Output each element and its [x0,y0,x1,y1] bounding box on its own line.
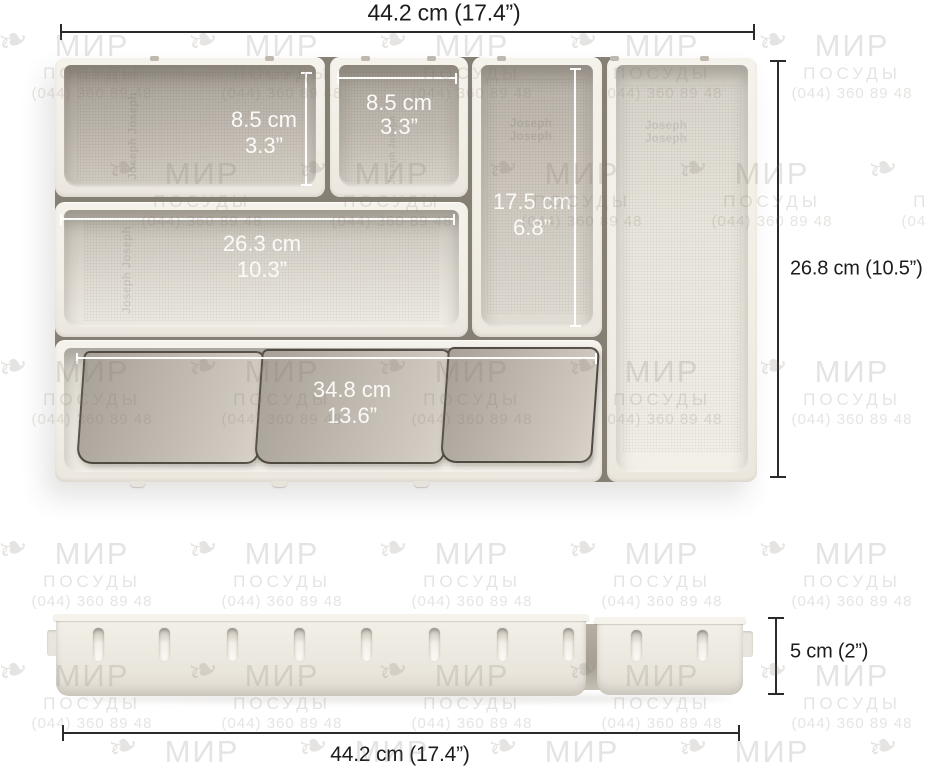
drawer-organizer-dimension-diagram: ❧МИРПОСУДЫ(044) 360 89 48❧МИРПОСУДЫ(044)… [0,0,927,768]
bottom-tab [272,481,287,487]
mid-wide-cm: 26.3 cm [223,231,301,257]
left-top-cm: 8.5 cm [231,107,297,133]
side-view-long-tray [56,614,586,696]
watermark: ❧МИРПОСУДЫ(044) 360 89 48 [782,30,922,101]
watermark: ❧МИРПОСУДЫ(044) 360 89 48 [402,538,542,609]
bottom-long-inch: 13.6” [327,403,377,429]
watermark-logo-icon: ❧ [863,724,903,768]
watermark-logo-icon: ❧ [483,724,523,768]
watermark: ❧МИРПОСУДЫ(044) 360 89 48 [592,538,732,609]
watermark-logo-icon: ❧ [0,526,33,570]
tray-slot [293,627,306,662]
embossed-logo: Joseph Joseph [121,226,134,314]
rim-clip [427,56,436,61]
bottom-tab [414,481,429,487]
watermark-logo-icon: ❧ [373,526,413,570]
tray-slot [496,627,509,662]
rim-clip [265,56,274,61]
side-view-small-tray [597,617,743,695]
divider-panel-1 [76,351,266,464]
tray-slot [158,627,171,662]
bottom-tab [130,481,145,487]
embossed-logo: Joseph Joseph [643,120,689,146]
tray-slot [428,627,441,662]
bottom-long-dimension-line [76,357,597,359]
mid-right-cm: 17.5 cm [493,189,571,215]
watermark: ❧МИРПОСУДЫ(044) 360 89 48 [212,538,352,609]
divider-panel-3 [440,347,600,463]
watermark-logo-icon: ❧ [103,724,143,768]
tray-slot [562,627,575,662]
height-dimension-label: 26.8 cm (10.5”) [790,258,923,281]
top-width-dimension-label: 44.2 cm (17.4”) [368,0,521,27]
rim-clip [150,56,159,61]
watermark-logo-icon: ❧ [0,18,33,62]
tray-slot [630,629,643,662]
watermark-logo-icon: ❧ [183,526,223,570]
tray-slot [92,627,105,662]
height-dimension-line [777,60,779,478]
watermark-logo-icon: ❧ [0,648,33,692]
watermark-logo-icon: ❧ [563,18,603,62]
embossed-logo: Joseph Joseph [127,92,140,180]
left-top-inch: 3.3” [245,133,283,159]
watermark: ❧МИРПОСУДЫ(044) 360 89 48 [512,736,652,768]
embossed-logo: Joseph Joseph [508,118,554,144]
left-top-dimension-line [305,72,307,186]
top-width-dimension-line [60,31,755,33]
watermark: ❧МИРПОСУДЫ(044) 360 89 48 [892,158,927,229]
top-small-dimension-line [337,77,457,79]
tray-slot [360,627,373,662]
watermark-logo-icon: ❧ [753,344,793,388]
top-small-inch: 3.3” [380,114,418,140]
rim-clip [361,56,370,61]
watermark-logo-icon: ❧ [863,146,903,190]
tray-slot [696,629,709,662]
watermark-logo-icon: ❧ [563,526,603,570]
watermark: ❧МИРПОСУДЫ(044) 360 89 48 [22,538,162,609]
watermark: ❧МИРПОСУДЫ(044) 360 89 48 [782,538,922,609]
watermark: ❧МИРПОСУДЫ(044) 360 89 48 [702,736,842,768]
rim-clip [497,56,506,61]
watermark-logo-icon: ❧ [753,18,793,62]
organizer-top-view: Joseph Joseph Joseph Joseph Joseph Josep… [55,57,757,482]
watermark-logo-icon: ❧ [673,724,713,768]
rim-clip [610,56,619,61]
tray-slot [226,627,239,662]
depth-dimension-line [775,617,777,695]
depth-dimension-label: 5 cm (2”) [790,641,868,664]
watermark: ❧МИРПОСУДЫ(044) 360 89 48 [782,356,922,427]
bottom-long-cm: 34.8 cm [313,377,391,403]
watermark-logo-icon: ❧ [753,648,793,692]
watermark-logo-icon: ❧ [293,724,333,768]
mid-wide-inch: 10.3” [237,257,287,283]
watermark-logo-icon: ❧ [753,526,793,570]
watermark: ❧МИРПОСУДЫ(044) 360 89 48 [132,736,272,768]
bottom-width-dimension-line [62,732,740,734]
watermark-logo-icon: ❧ [183,18,223,62]
rim-clip [700,56,709,61]
top-small-cm: 8.5 cm [366,90,432,116]
watermark: ❧МИРПОСУДЫ(044) 360 89 48 [782,660,922,731]
bottom-width-dimension-label: 44.2 cm (17.4”) [330,743,469,767]
mid-wide-dimension-line [60,218,455,220]
watermark: ❧МИРПОСУДЫ(044) 360 89 48 [892,736,927,768]
mid-right-inch: 6.8” [513,215,551,241]
mid-right-dimension-line [574,68,576,327]
watermark-logo-icon: ❧ [0,344,33,388]
